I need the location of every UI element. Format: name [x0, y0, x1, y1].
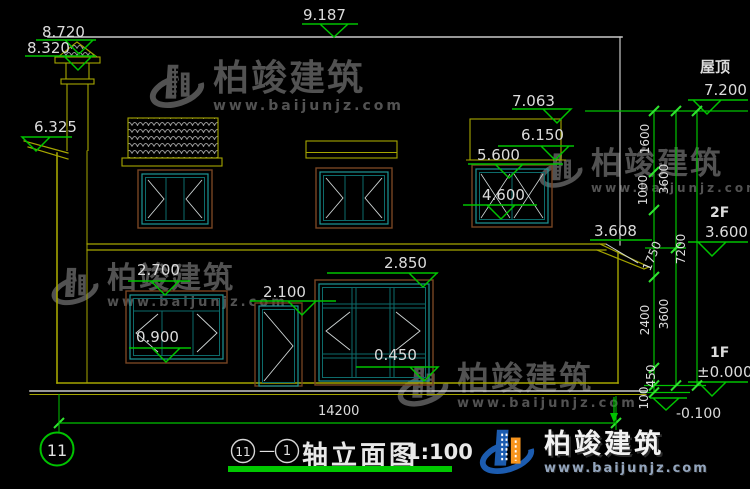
drawing-scale: 1:100 — [406, 440, 473, 464]
total-width-dim: 14200 — [318, 405, 359, 418]
ground-level-value: -0.100 — [676, 407, 721, 421]
roof-level-value: 7.200 — [704, 83, 747, 98]
brand-logo-text: 柏竣建筑 — [544, 431, 709, 458]
elevation-label-2700: 2.700 — [137, 263, 180, 278]
window-2f-left — [122, 118, 222, 228]
dim-100: 100 — [638, 378, 650, 418]
elevation-label-7063: 7.063 — [512, 94, 555, 109]
elevation-label-2100: 2.100 — [263, 285, 306, 300]
window-2f-middle — [306, 141, 397, 228]
elevation-label-8720: 8.720 — [42, 25, 85, 40]
floor2-value: 3.600 — [705, 225, 748, 240]
window-1f-big — [315, 280, 433, 385]
dim-7200: 7200 — [675, 229, 687, 269]
elevation-label-8320: 8.320 — [27, 41, 70, 56]
entry-door — [255, 303, 302, 386]
dim-3600-lower: 3600 — [658, 294, 670, 334]
building-outline — [24, 37, 649, 395]
roof-level-label: 屋顶 — [700, 60, 730, 75]
brand-logo-url: www.baijunjz.com — [544, 461, 709, 476]
elevation-label-3608: 3.608 — [594, 224, 637, 239]
elevation-label-9187: 9.187 — [303, 8, 346, 23]
dim-1600: 1600 — [639, 119, 651, 159]
title-underline — [228, 466, 452, 472]
elevation-label-5600: 5.600 — [477, 148, 520, 163]
dim-3600-upper: 3600 — [658, 159, 670, 199]
axis-bubble-number: 11 — [40, 441, 74, 460]
title-axis-end: 1 — [275, 444, 299, 459]
dim-2400: 2400 — [639, 300, 651, 340]
dim-1000: 1000 — [637, 170, 649, 210]
elevation-label-6150: 6.150 — [521, 128, 564, 143]
elevation-label-4600: 4.600 — [482, 188, 525, 203]
elevation-label-0450: 0.450 — [374, 348, 417, 363]
brand-logo: 柏竣建筑 www.baijunjz.com — [478, 424, 709, 482]
elevation-label-0900: 0.900 — [136, 330, 179, 345]
floor2-label: 2F — [710, 206, 729, 220]
cad-elevation-drawing: 柏竣建筑 www.baijunjz.com 柏竣建筑 www.baijunjz.… — [0, 0, 750, 489]
elevation-label-2850: 2.850 — [384, 256, 427, 271]
baijun-logo-color-icon — [478, 424, 536, 482]
elevation-label-6325: 6.325 — [34, 120, 77, 135]
floor1-label: 1F — [710, 346, 729, 360]
floor1-value: ±0.000 — [697, 365, 750, 380]
